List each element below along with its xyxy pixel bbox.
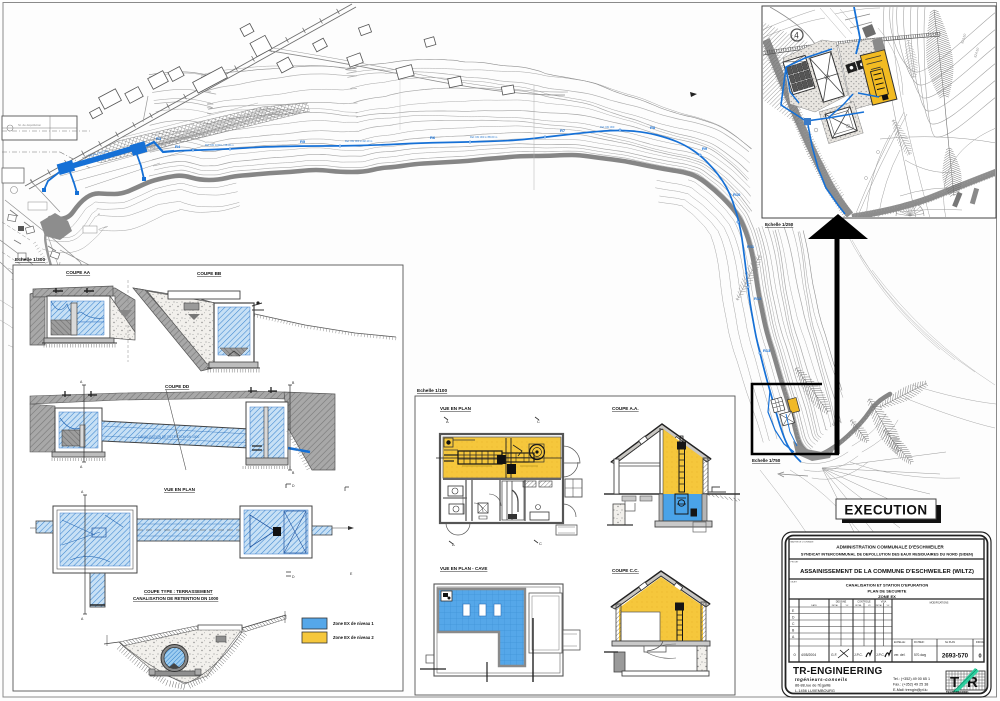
svg-text:INITIAL: INITIAL — [855, 604, 861, 607]
svg-text:J.P.C.: J.P.C. — [854, 653, 863, 657]
svg-text:VUE EN PLAN: VUE EN PLAN — [164, 487, 196, 492]
svg-text:L-1456 LUXEMBOURG: L-1456 LUXEMBOURG — [795, 689, 835, 693]
svg-text:R3: R3 — [156, 136, 162, 141]
svg-text:Fax.: (+352) 49 25 38: Fax.: (+352) 49 25 38 — [893, 683, 928, 687]
svg-text:EXECUTION: EXECUTION — [844, 503, 927, 518]
svg-text:R10: R10 — [733, 192, 741, 197]
svg-text:4/05/2004: 4/05/2004 — [801, 653, 816, 657]
svg-text:St. de dépollution: St. de dépollution — [18, 123, 42, 127]
svg-text:2693-570: 2693-570 — [942, 653, 969, 660]
svg-text:DESSINE: DESSINE — [836, 601, 847, 604]
svg-text:E-Mail: trengin@pt.lu: E-Mail: trengin@pt.lu — [893, 688, 928, 692]
svg-text:CANALISATION ET STATION D'EPUR: CANALISATION ET STATION D'EPURATION — [846, 583, 929, 588]
svg-text:VUE EN PLAN: VUE EN PLAN — [440, 406, 472, 411]
svg-text:VISA: VISA — [881, 601, 887, 604]
svg-text:INDICE: INDICE — [976, 641, 985, 644]
svg-text:INITIAL: INITIAL — [876, 604, 882, 607]
svg-text:CONTROLE: CONTROLE — [857, 601, 871, 604]
svg-text:COUPE BB: COUPE BB — [197, 271, 222, 276]
svg-text:PLAN DE SECURITE: PLAN DE SECURITE — [868, 589, 907, 594]
svg-text:R13: R13 — [763, 348, 771, 353]
svg-text:C: C — [537, 419, 540, 424]
svg-text:Ref. DN 300 L=92.10 m: Ref. DN 300 L=92.10 m — [345, 139, 372, 143]
svg-text:TR-ENGINEERING: TR-ENGINEERING — [946, 690, 968, 694]
svg-text:COUPE A.A.: COUPE A.A. — [612, 406, 639, 411]
svg-text:A: A — [452, 542, 455, 547]
svg-text:COUPE AA: COUPE AA — [66, 270, 91, 275]
svg-text:VUE EN PLAN - CAVE: VUE EN PLAN - CAVE — [440, 566, 487, 571]
svg-text:R7: R7 — [560, 128, 566, 133]
svg-text:DATE: DATE — [811, 604, 817, 607]
svg-text:Echelle 1/750: Echelle 1/750 — [752, 458, 781, 463]
svg-text:SYNDICAT INTERCOMMUNAL DE DEPO: SYNDICAT INTERCOMMUNAL DE DEPOLLUTION DE… — [801, 553, 974, 557]
svg-text:Echelle 1/250: Echelle 1/250 — [765, 222, 794, 227]
svg-text:Echelle 1/100: Echelle 1/100 — [417, 388, 447, 394]
svg-text:No PLAN: No PLAN — [945, 641, 955, 644]
svg-text:Zone EX de niveau 2: Zone EX de niveau 2 — [333, 635, 374, 640]
svg-text:TR-ENGINEERING: TR-ENGINEERING — [793, 666, 882, 677]
svg-text:570.dwg: 570.dwg — [914, 653, 926, 657]
svg-text:COUPE TYPE : TERRASSEMENT: COUPE TYPE : TERRASSEMENT — [144, 589, 213, 594]
svg-text:ASSAINISSEMENT DE LA COMMUNE D: ASSAINISSEMENT DE LA COMMUNE D'ESCHWEILE… — [800, 569, 974, 575]
svg-text:R11: R11 — [747, 244, 755, 249]
svg-text:G.F.: G.F. — [831, 653, 837, 657]
svg-text:R5: R5 — [300, 139, 306, 144]
svg-text:OBJET: OBJET — [791, 582, 798, 584]
svg-text:Ingénieurs-conseils: Ingénieurs-conseils — [795, 677, 848, 682]
svg-text:INITIAL: INITIAL — [832, 604, 838, 607]
svg-text:MODIFICATIONS: MODIFICATIONS — [930, 602, 949, 605]
svg-text:CANALISATION DE RETENTION DN 1: CANALISATION DE RETENTION DN 1000 — [133, 596, 219, 601]
svg-text:C: C — [539, 541, 542, 546]
svg-text:4: 4 — [794, 31, 799, 40]
svg-text:86-88,rue de l'Égalité: 86-88,rue de l'Égalité — [795, 683, 831, 688]
svg-text:COUPE C.C.: COUPE C.C. — [612, 568, 639, 573]
svg-text:MAITRE DE L'OUVRAGE: MAITRE DE L'OUVRAGE — [791, 541, 815, 544]
svg-text:R6: R6 — [430, 135, 436, 140]
svg-text:PROJET: PROJET — [791, 562, 800, 564]
svg-text:ver. def.: ver. def. — [894, 653, 905, 657]
svg-text:Echelle 1/300: Echelle 1/300 — [15, 257, 45, 263]
svg-text:0: 0 — [978, 654, 981, 660]
svg-text:R9: R9 — [702, 146, 708, 151]
svg-text:Zone EX de niveau 1: Zone EX de niveau 1 — [333, 621, 374, 626]
svg-text:R4: R4 — [175, 144, 181, 149]
svg-text:ADMINISTRATION COMMUNALE D'ESC: ADMINISTRATION COMMUNALE D'ESCHWEILER — [836, 545, 944, 550]
svg-text:ZONE EX: ZONE EX — [878, 594, 896, 599]
svg-text:ECHELLE :: ECHELLE : — [894, 641, 907, 644]
svg-text:Ref. DN 300 L=85.60 m: Ref. DN 300 L=85.60 m — [470, 135, 497, 139]
svg-text:A: A — [446, 419, 449, 424]
svg-text:CANALISATION DE RETENTION DN 1: CANALISATION DE RETENTION DN 1000 — [138, 435, 199, 439]
svg-text:Ref. DN 300: Ref. DN 300 — [600, 125, 615, 129]
svg-text:R8: R8 — [650, 125, 656, 130]
svg-text:J.P.C.: J.P.C. — [876, 653, 885, 657]
svg-text:Ref. DN 1000 L=48.30 m: Ref. DN 1000 L=48.30 m — [205, 143, 234, 147]
svg-text:Tel.: (+352) 49 00 65 1: Tel.: (+352) 49 00 65 1 — [893, 677, 930, 681]
svg-text:COUPE DD: COUPE DD — [165, 384, 190, 389]
svg-text:FICHIER :: FICHIER : — [914, 641, 925, 644]
svg-text:R12: R12 — [754, 296, 762, 301]
